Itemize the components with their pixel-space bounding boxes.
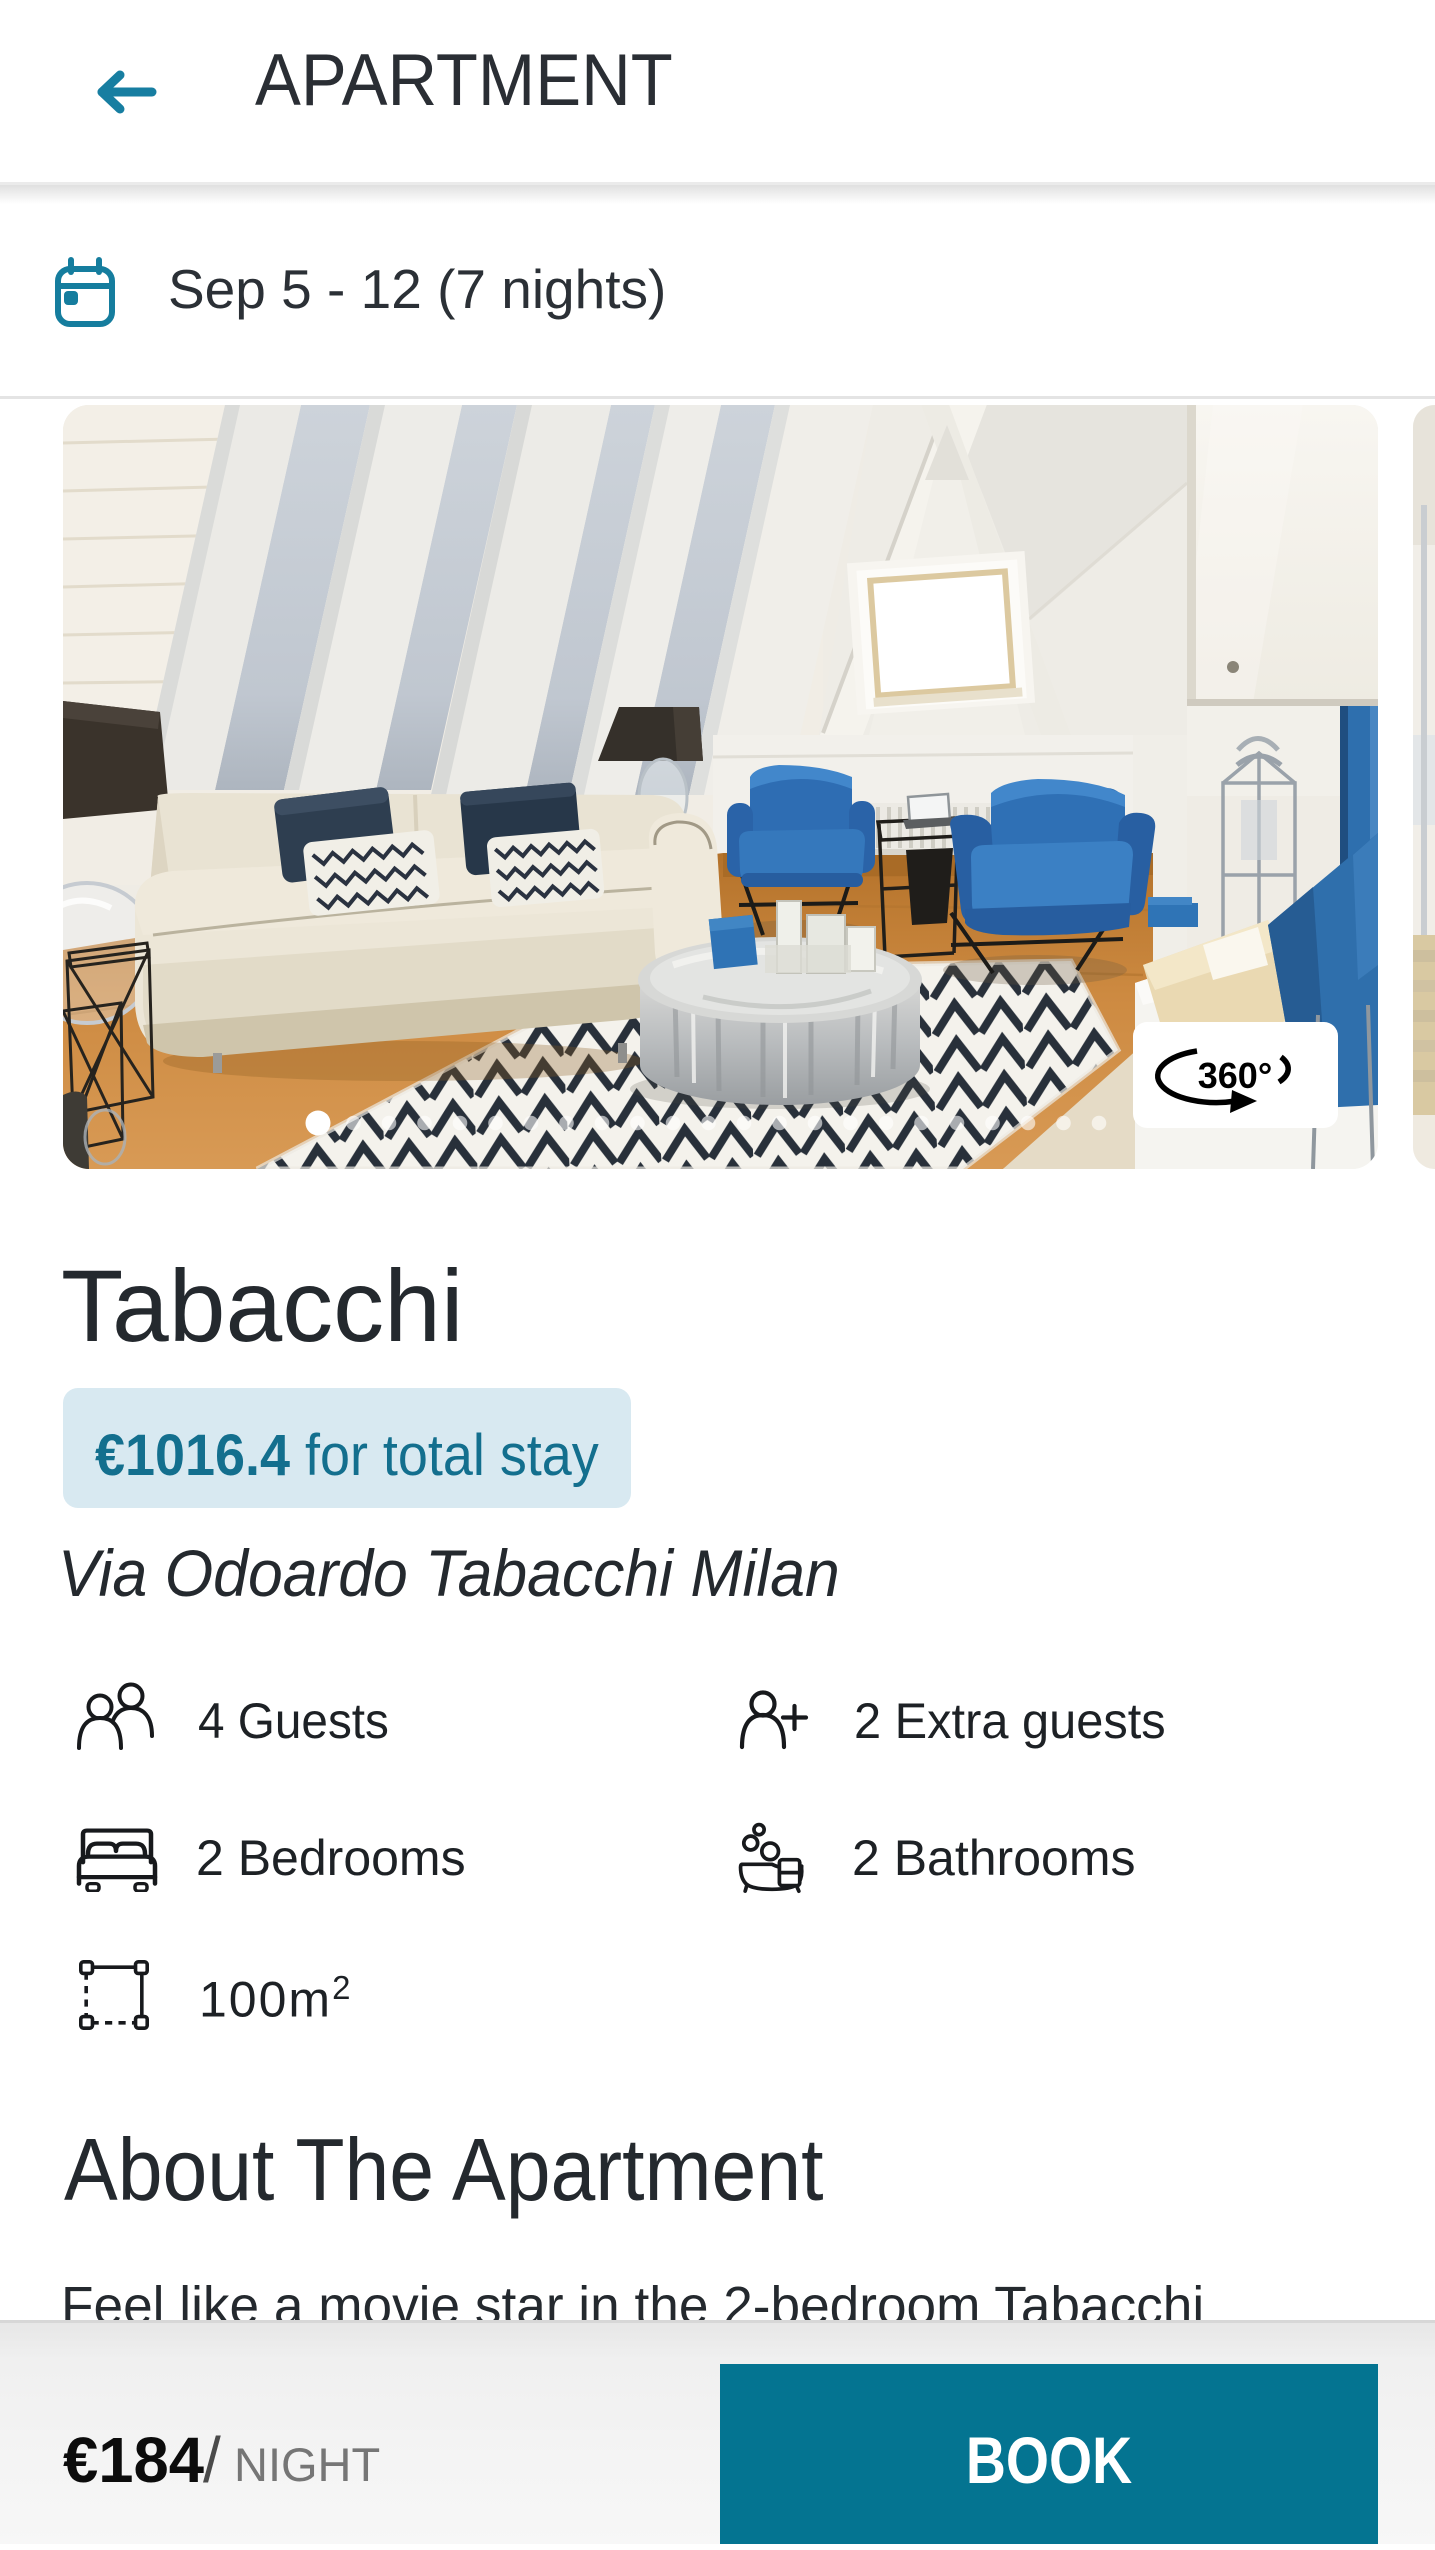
svg-text:360°: 360° bbox=[1198, 1055, 1272, 1096]
